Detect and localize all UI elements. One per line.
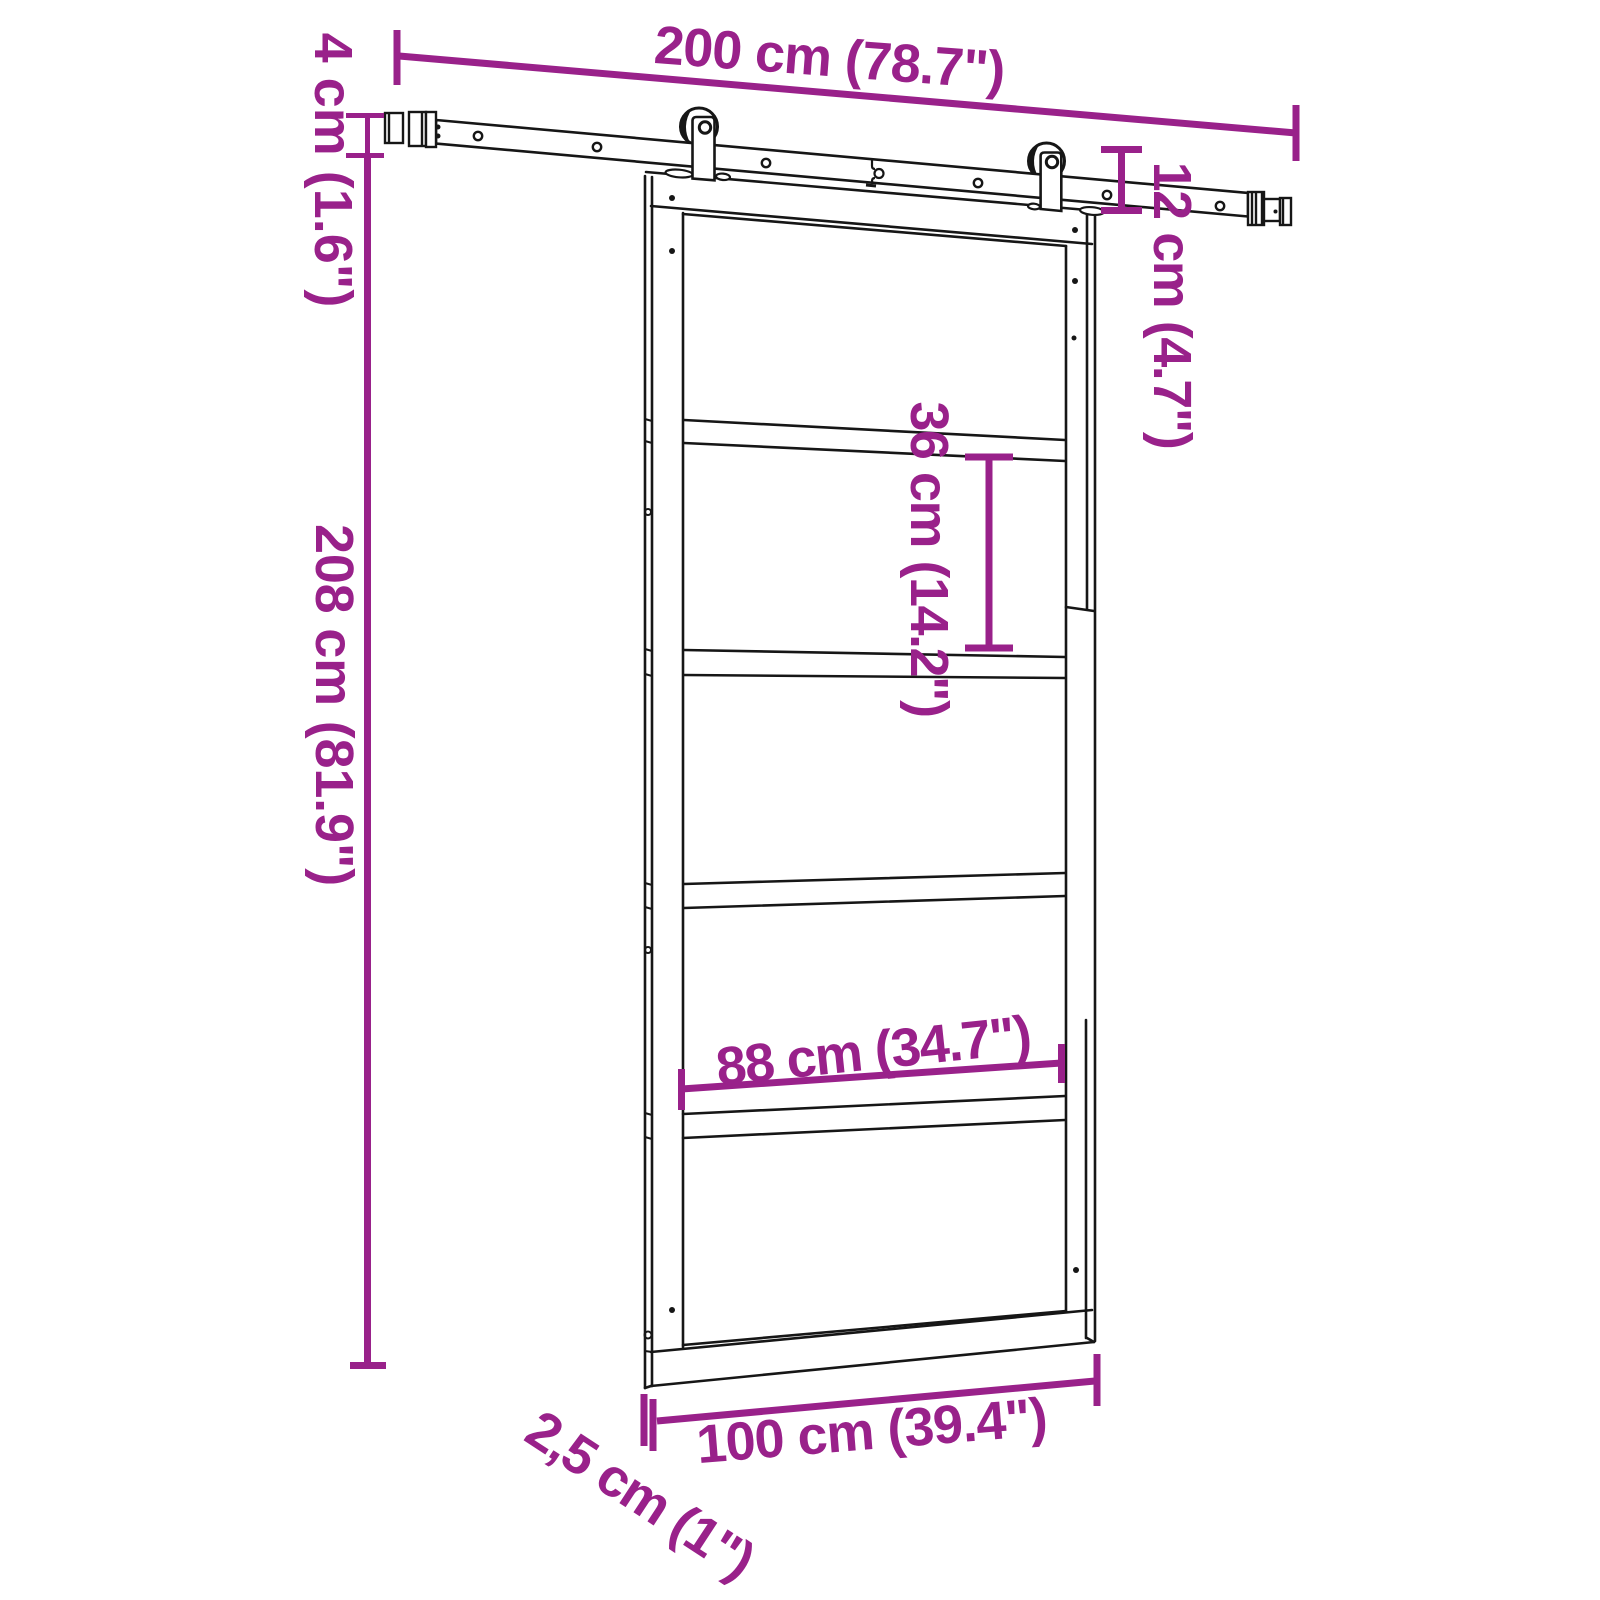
svg-text:12 cm (4.7"): 12 cm (4.7") [1142, 162, 1202, 449]
svg-text:36 cm (14.2"): 36 cm (14.2") [899, 401, 959, 716]
svg-text:208 cm (81.9"): 208 cm (81.9") [304, 524, 364, 886]
svg-text:4 cm (1.6"): 4 cm (1.6") [303, 33, 363, 308]
